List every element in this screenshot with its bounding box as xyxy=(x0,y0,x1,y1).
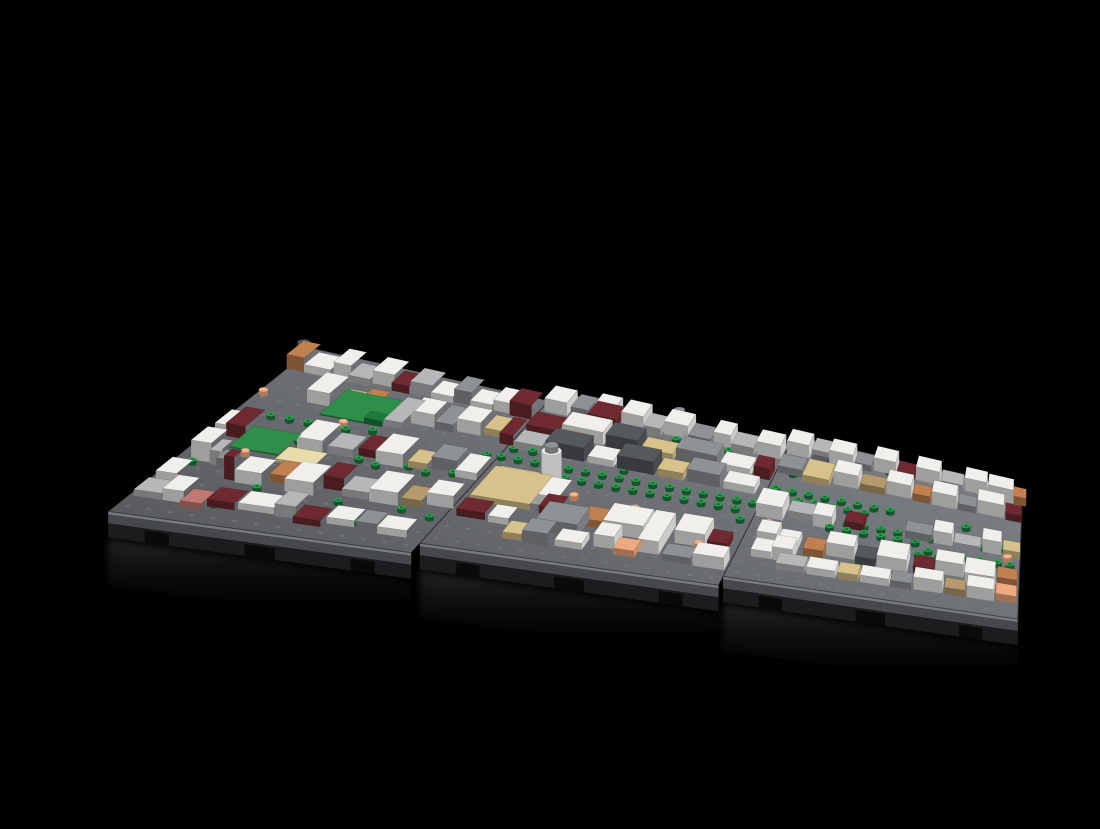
tree-round-plate xyxy=(594,481,603,489)
tree-round-plate xyxy=(680,496,689,504)
brick-building xyxy=(933,519,954,546)
brick-building xyxy=(787,429,814,459)
tree-round-plate xyxy=(371,462,380,470)
tree-round-plate xyxy=(632,478,641,486)
brick-building xyxy=(914,567,944,594)
tree-round-plate xyxy=(733,496,742,504)
tree-round-plate xyxy=(821,495,830,503)
brick-building xyxy=(756,429,786,459)
tree-round-plate xyxy=(682,487,691,495)
tree-round-plate xyxy=(397,505,406,513)
tree-round-plate xyxy=(731,505,740,513)
dome-round-piece xyxy=(241,448,250,457)
brick-building xyxy=(756,488,790,521)
brick-building xyxy=(826,531,857,560)
brick-building xyxy=(996,583,1017,604)
product-photo xyxy=(0,0,1100,829)
photo-canvas xyxy=(0,0,1100,829)
brick-building xyxy=(834,460,863,490)
tree-round-plate xyxy=(285,416,294,424)
tree-round-plate xyxy=(665,484,674,492)
tree-round-plate xyxy=(425,513,434,521)
tree-round-plate xyxy=(716,493,725,501)
tree-round-plate xyxy=(748,499,757,507)
brick-building xyxy=(803,536,827,558)
brick-building xyxy=(837,562,861,582)
tree-round-plate xyxy=(911,539,920,547)
tree-round-plate xyxy=(837,498,846,506)
brick-building xyxy=(944,577,966,597)
tree-round-plate xyxy=(699,490,708,498)
tree-round-plate xyxy=(531,459,540,467)
brick-building xyxy=(932,480,958,509)
tree-round-plate xyxy=(870,504,879,512)
tree-round-plate xyxy=(581,468,590,476)
tree-round-plate xyxy=(924,548,933,556)
tree-round-plate xyxy=(368,427,377,435)
tree-round-plate xyxy=(598,472,607,480)
tree-round-plate xyxy=(628,487,637,495)
round-tower xyxy=(545,442,559,454)
tree-round-plate xyxy=(334,498,343,506)
tree-round-plate xyxy=(266,412,275,420)
tree-round-plate xyxy=(886,507,895,515)
lego-city-model-render xyxy=(0,0,1100,829)
tree-round-plate xyxy=(663,493,672,501)
brick-building xyxy=(1006,503,1022,523)
brick-building xyxy=(891,570,914,590)
tree-round-plate xyxy=(697,499,706,507)
dome-round-piece xyxy=(259,387,268,396)
brick-building xyxy=(855,545,878,567)
brick-building xyxy=(967,575,995,602)
tree-round-plate xyxy=(646,490,655,498)
tree-round-plate xyxy=(859,530,868,538)
tree-round-plate xyxy=(497,453,506,461)
tree-round-plate xyxy=(853,501,862,509)
tree-round-plate xyxy=(962,524,971,532)
tree-round-plate xyxy=(421,468,430,476)
tree-round-plate xyxy=(611,484,620,492)
brick-building xyxy=(887,470,914,499)
tree-round-plate xyxy=(714,502,723,510)
brick-building xyxy=(982,528,1002,555)
dome-round-piece xyxy=(569,492,578,501)
tree-round-plate xyxy=(615,475,624,483)
brick-building xyxy=(693,542,730,570)
page: { "meta": { "alt": "LEGO-style micro-sca… xyxy=(0,0,1100,829)
tree-round-plate xyxy=(648,481,657,489)
tree-round-plate xyxy=(564,465,573,473)
tree-round-plate xyxy=(736,516,745,524)
tree-round-plate xyxy=(577,478,586,486)
tree-round-plate xyxy=(514,456,523,464)
tree-round-plate xyxy=(528,448,537,456)
tree-round-plate xyxy=(355,456,364,464)
brick-building xyxy=(913,483,933,504)
brick-building xyxy=(1014,486,1027,506)
tree-round-plate xyxy=(804,491,813,499)
